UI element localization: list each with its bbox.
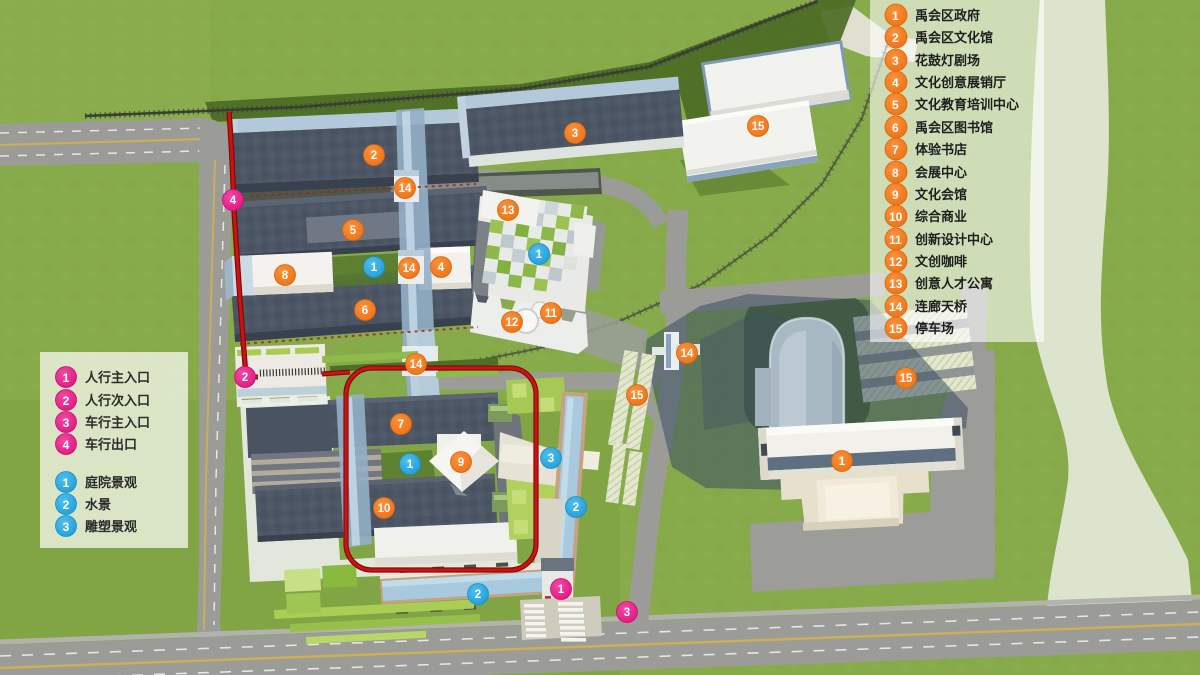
svg-text:2: 2 [475,589,481,601]
svg-text:文创咖啡: 文创咖啡 [915,254,967,269]
svg-text:6: 6 [892,121,899,135]
svg-text:8: 8 [282,270,289,282]
svg-text:4: 4 [230,195,237,207]
svg-text:7: 7 [398,419,404,431]
svg-text:创意人才公寓: 创意人才公寓 [914,276,993,291]
svg-text:2: 2 [63,498,70,512]
svg-text:连廊天桥: 连廊天桥 [915,299,968,314]
svg-text:人行主入口: 人行主入口 [85,370,150,385]
svg-text:4: 4 [438,262,445,274]
svg-text:8: 8 [892,166,899,180]
svg-text:15: 15 [631,390,644,402]
svg-text:4: 4 [63,438,70,452]
svg-text:2: 2 [63,394,70,408]
svg-text:14: 14 [403,263,416,275]
svg-text:花鼓灯剧场: 花鼓灯剧场 [915,53,980,68]
svg-text:2: 2 [371,150,377,162]
svg-text:3: 3 [63,520,70,534]
svg-text:体验书店: 体验书店 [915,142,967,157]
svg-text:14: 14 [889,300,903,314]
svg-text:文化创意展销厅: 文化创意展销厅 [915,75,1006,90]
svg-text:3: 3 [548,453,554,465]
svg-text:车行主入口: 车行主入口 [85,415,150,430]
svg-text:11: 11 [889,233,902,247]
svg-text:10: 10 [378,503,391,515]
svg-text:禹会区政府: 禹会区政府 [915,8,980,23]
svg-text:3: 3 [63,416,70,430]
svg-text:1: 1 [371,262,378,274]
svg-text:1: 1 [839,456,846,468]
svg-text:人行次入口: 人行次入口 [85,393,150,408]
svg-text:2: 2 [242,372,248,384]
svg-text:12: 12 [889,255,903,269]
svg-text:1: 1 [536,249,543,261]
svg-text:文化会馆: 文化会馆 [915,187,967,202]
svg-text:5: 5 [350,225,357,237]
svg-text:13: 13 [502,205,515,217]
svg-text:14: 14 [681,348,694,360]
svg-text:15: 15 [900,373,913,385]
svg-text:15: 15 [752,121,765,133]
svg-text:3: 3 [572,128,578,140]
svg-text:水景: 水景 [85,497,111,512]
svg-text:创新设计中心: 创新设计中心 [914,232,993,247]
svg-text:文化教育培训中心: 文化教育培训中心 [915,97,1019,112]
svg-text:13: 13 [889,277,903,291]
svg-text:10: 10 [889,210,903,224]
svg-text:3: 3 [624,607,630,619]
svg-text:9: 9 [892,188,899,202]
svg-text:15: 15 [889,322,903,336]
svg-text:4: 4 [892,76,899,90]
svg-text:庭院景观: 庭院景观 [85,475,137,490]
svg-text:14: 14 [399,183,412,195]
svg-text:1: 1 [892,9,899,23]
svg-text:7: 7 [892,143,899,157]
svg-text:9: 9 [458,457,464,469]
svg-text:5: 5 [892,98,899,112]
svg-text:2: 2 [573,502,579,514]
svg-text:3: 3 [892,54,899,68]
svg-text:14: 14 [410,359,423,371]
svg-text:1: 1 [63,371,70,385]
svg-text:11: 11 [545,308,558,320]
svg-text:2: 2 [892,31,899,45]
svg-text:12: 12 [506,317,519,329]
svg-text:车行出口: 车行出口 [85,437,137,452]
svg-text:停车场: 停车场 [915,321,954,336]
svg-text:综合商业: 综合商业 [915,209,967,224]
svg-text:1: 1 [407,459,414,471]
svg-text:禹会区图书馆: 禹会区图书馆 [915,120,993,135]
svg-text:禹会区文化馆: 禹会区文化馆 [915,30,993,45]
svg-text:1: 1 [558,584,565,596]
svg-text:6: 6 [362,305,368,317]
svg-text:1: 1 [63,476,70,490]
svg-text:雕塑景观: 雕塑景观 [85,519,137,534]
svg-text:会展中心: 会展中心 [915,165,967,180]
